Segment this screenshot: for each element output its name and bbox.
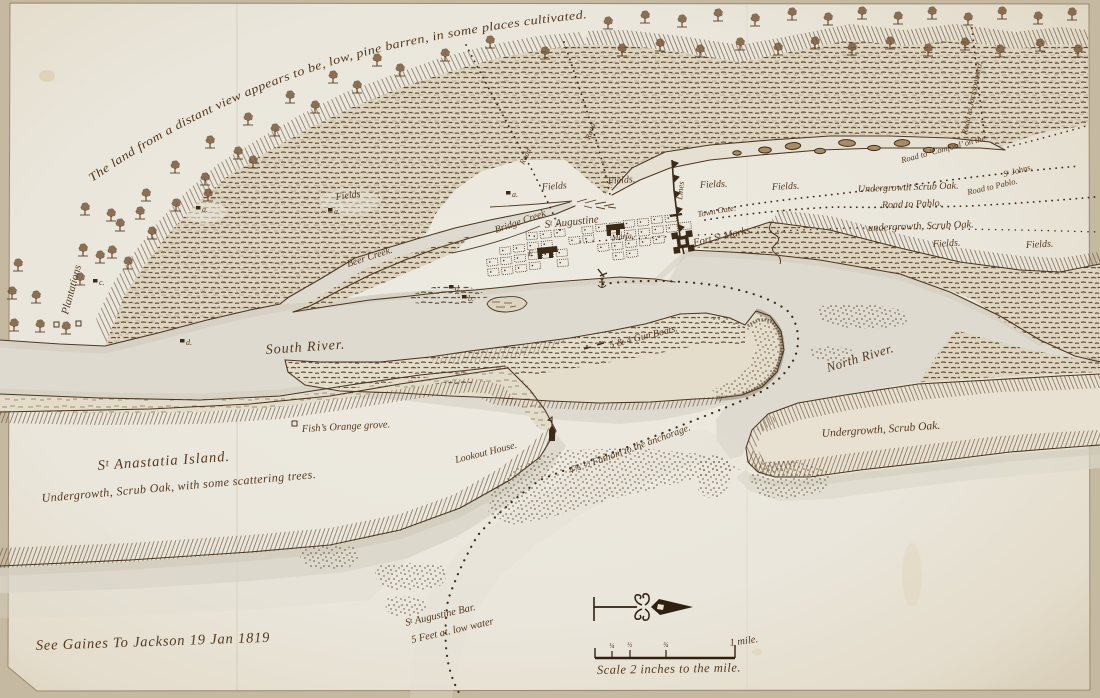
svg-text:Fields.: Fields. xyxy=(1025,239,1054,251)
svg-text:Fields.: Fields. xyxy=(771,181,800,193)
svg-text:F.: F. xyxy=(527,249,534,258)
svg-text:c.: c. xyxy=(99,278,105,287)
svg-text:¼: ¼ xyxy=(609,642,615,650)
svg-text:Fields: Fields xyxy=(540,180,567,193)
svg-text:¾: ¾ xyxy=(663,641,669,649)
svg-text:a.: a. xyxy=(202,205,208,214)
svg-text:b.: b. xyxy=(468,294,474,303)
svg-text:a.: a. xyxy=(334,207,340,216)
svg-text:d.: d. xyxy=(455,284,461,293)
svg-text:Road to Pablo.: Road to Pablo. xyxy=(881,198,943,211)
svg-text:a.: a. xyxy=(512,190,518,199)
svg-text:Maria: Maria xyxy=(610,231,632,242)
svg-text:Fields.: Fields. xyxy=(606,174,635,187)
svg-text:d.: d. xyxy=(186,338,192,347)
svg-text:Fields.: Fields. xyxy=(932,238,961,250)
svg-text:Lines: Lines xyxy=(674,180,686,201)
svg-text:Scale 2 inches to the mile.: Scale 2 inches to the mile. xyxy=(597,660,741,677)
svg-text:½: ½ xyxy=(627,641,633,649)
svg-text:Fields.: Fields. xyxy=(699,179,728,191)
